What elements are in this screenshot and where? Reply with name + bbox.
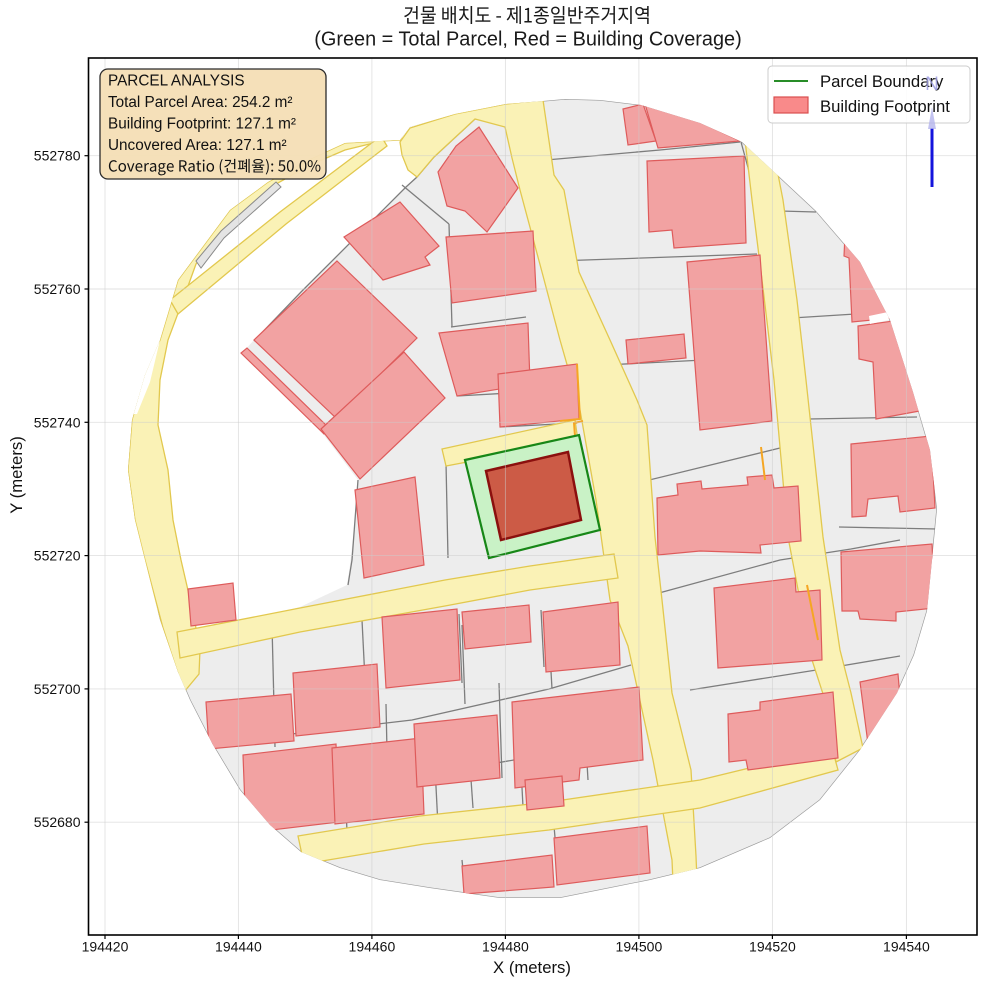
svg-text:Y (meters): Y (meters) [7,436,26,514]
svg-text:552740: 552740 [34,414,81,430]
svg-text:552680: 552680 [34,814,81,830]
svg-text:194540: 194540 [883,939,930,955]
svg-text:Uncovered Area: 127.1 m²: Uncovered Area: 127.1 m² [108,137,287,154]
svg-text:PARCEL ANALYSIS: PARCEL ANALYSIS [108,73,245,90]
svg-text:(Green = Total Parcel, Red = B: (Green = Total Parcel, Red = Building Co… [314,29,742,51]
svg-text:194420: 194420 [82,939,129,955]
svg-text:194460: 194460 [349,939,396,955]
svg-text:N: N [925,74,939,95]
svg-text:X (meters): X (meters) [493,958,571,977]
svg-text:Building Footprint: 127.1 m²: Building Footprint: 127.1 m² [108,116,296,133]
svg-text:194520: 194520 [749,939,796,955]
svg-text:194440: 194440 [215,939,262,955]
svg-text:194500: 194500 [616,939,663,955]
svg-text:552720: 552720 [34,548,81,564]
svg-text:552760: 552760 [34,281,81,297]
svg-text:Total Parcel Area: 254.2 m²: Total Parcel Area: 254.2 m² [108,94,293,111]
svg-text:194480: 194480 [482,939,529,955]
svg-text:552780: 552780 [34,148,81,164]
svg-text:Building Footprint: Building Footprint [820,97,950,116]
svg-text:552700: 552700 [34,681,81,697]
